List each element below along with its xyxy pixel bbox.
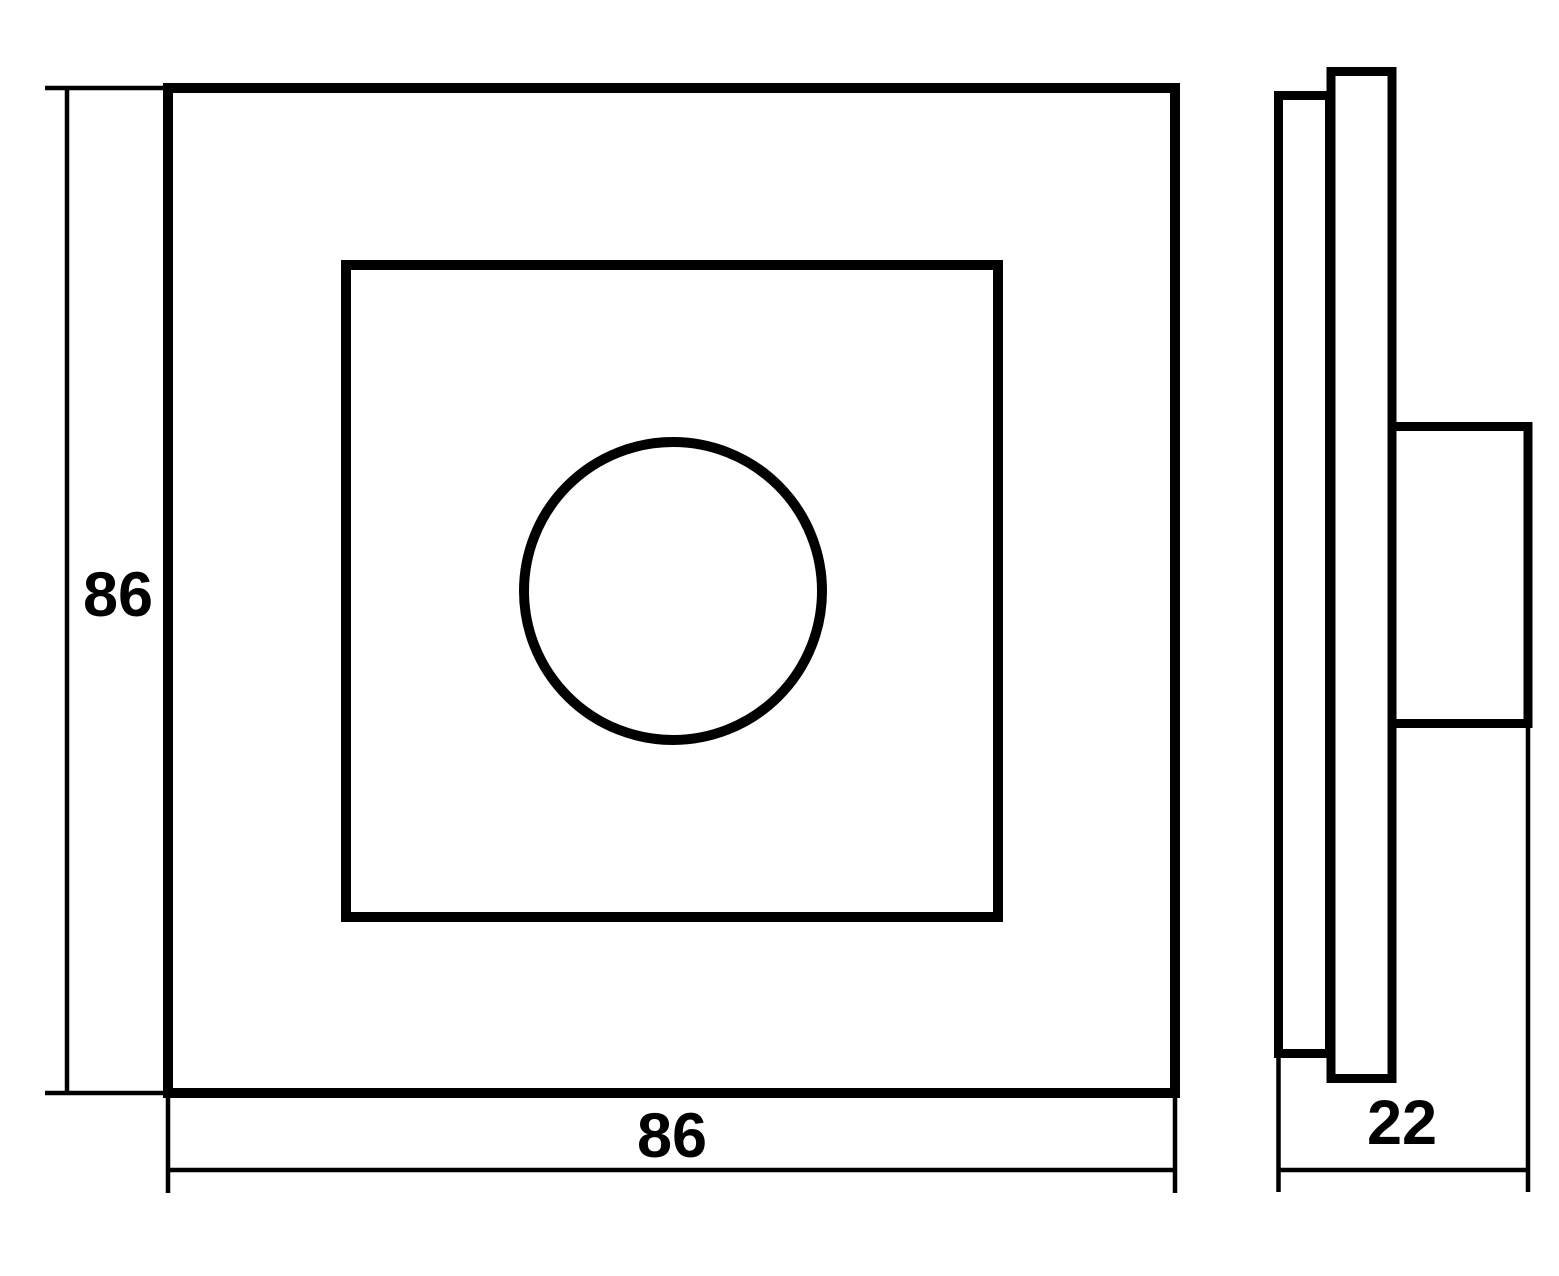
side-wall-plate xyxy=(1279,96,1330,1054)
dimmer-dimension-drawing: 86 86 22 xyxy=(0,0,1559,1276)
dimension-labels: 86 86 22 xyxy=(83,560,1437,1171)
depth-dimension-label: 22 xyxy=(1367,1088,1437,1158)
technical-drawing-canvas: 86 86 22 xyxy=(0,0,1559,1276)
front-view xyxy=(168,88,1175,1093)
width-dimension-label: 86 xyxy=(637,1101,707,1171)
side-knob xyxy=(1392,427,1528,724)
dimension-lines xyxy=(45,88,1528,1193)
height-dimension-label: 86 xyxy=(83,560,153,630)
front-outer-frame xyxy=(168,88,1175,1093)
side-view xyxy=(1279,72,1529,1079)
front-inner-frame xyxy=(346,265,998,917)
front-knob-circle xyxy=(524,442,822,740)
side-frame-plate xyxy=(1331,72,1392,1079)
